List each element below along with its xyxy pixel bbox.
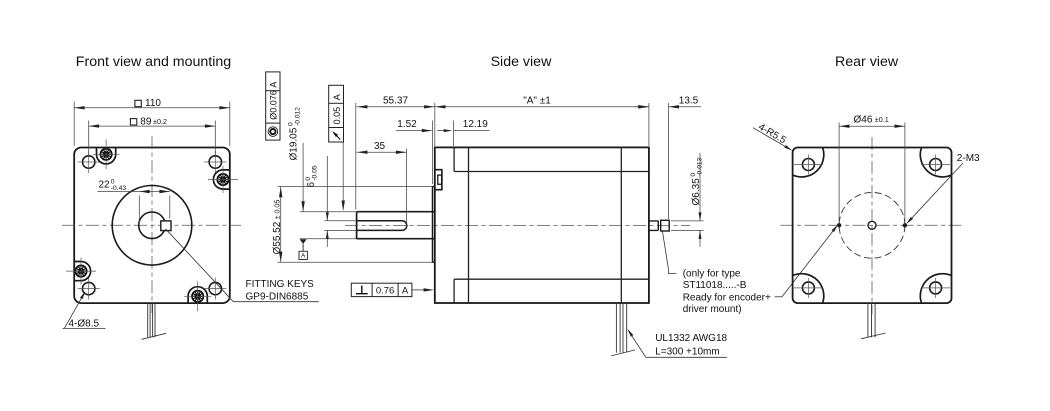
svg-text:Ready for encoder+: Ready for encoder+ bbox=[683, 292, 771, 303]
svg-text:A: A bbox=[269, 82, 279, 88]
svg-text:Ø6.35: Ø6.35 bbox=[691, 178, 702, 206]
svg-text:-0.013: -0.013 bbox=[697, 157, 704, 176]
svg-text:Side view: Side view bbox=[491, 54, 552, 70]
svg-text:1.52: 1.52 bbox=[397, 119, 417, 130]
svg-text:ST11018.....-B: ST11018.....-B bbox=[683, 280, 747, 291]
svg-text:Ø0.076: Ø0.076 bbox=[269, 90, 279, 120]
svg-text:A: A bbox=[301, 253, 306, 260]
svg-text:(only for type: (only for type bbox=[683, 268, 741, 279]
svg-text:Rear view: Rear view bbox=[835, 54, 899, 70]
svg-text:GP9-DIN6885: GP9-DIN6885 bbox=[246, 292, 309, 303]
svg-text:Ø46: Ø46 bbox=[854, 114, 873, 125]
svg-text:A: A bbox=[332, 94, 342, 100]
svg-text:±0.1: ±0.1 bbox=[875, 115, 889, 124]
svg-text:Front view and mounting: Front view and mounting bbox=[76, 54, 231, 70]
svg-text:-0.43: -0.43 bbox=[111, 185, 127, 192]
svg-text:±0.2: ±0.2 bbox=[153, 117, 167, 126]
svg-text:0.05: 0.05 bbox=[332, 107, 342, 125]
svg-text:FITTING KEYS: FITTING KEYS bbox=[246, 279, 315, 290]
svg-text:UL1332 AWG18: UL1332 AWG18 bbox=[655, 333, 727, 344]
svg-text:0.76: 0.76 bbox=[376, 285, 395, 296]
svg-text:± 0.05: ± 0.05 bbox=[273, 200, 282, 220]
svg-text:55.37: 55.37 bbox=[383, 96, 408, 107]
svg-text:driver mount): driver mount) bbox=[683, 304, 742, 315]
svg-text:-0.012: -0.012 bbox=[294, 107, 301, 126]
svg-text:2-M3: 2-M3 bbox=[957, 153, 980, 164]
svg-text:22: 22 bbox=[99, 179, 111, 190]
svg-text:12.19: 12.19 bbox=[463, 119, 488, 130]
svg-text:110: 110 bbox=[145, 98, 161, 109]
svg-text:A: A bbox=[402, 285, 409, 296]
svg-text:Ø19.05: Ø19.05 bbox=[289, 127, 300, 160]
svg-text:89: 89 bbox=[140, 116, 152, 127]
svg-text:-0.05: -0.05 bbox=[311, 165, 318, 181]
svg-text:35: 35 bbox=[374, 141, 386, 152]
svg-text:13.5: 13.5 bbox=[679, 96, 699, 107]
svg-text:4-Ø8.5: 4-Ø8.5 bbox=[69, 318, 100, 329]
svg-text:L=300 +10mm: L=300 +10mm bbox=[655, 346, 720, 357]
svg-text:Ø55.52: Ø55.52 bbox=[272, 221, 283, 254]
svg-text:"A" ±1: "A" ±1 bbox=[523, 96, 551, 107]
